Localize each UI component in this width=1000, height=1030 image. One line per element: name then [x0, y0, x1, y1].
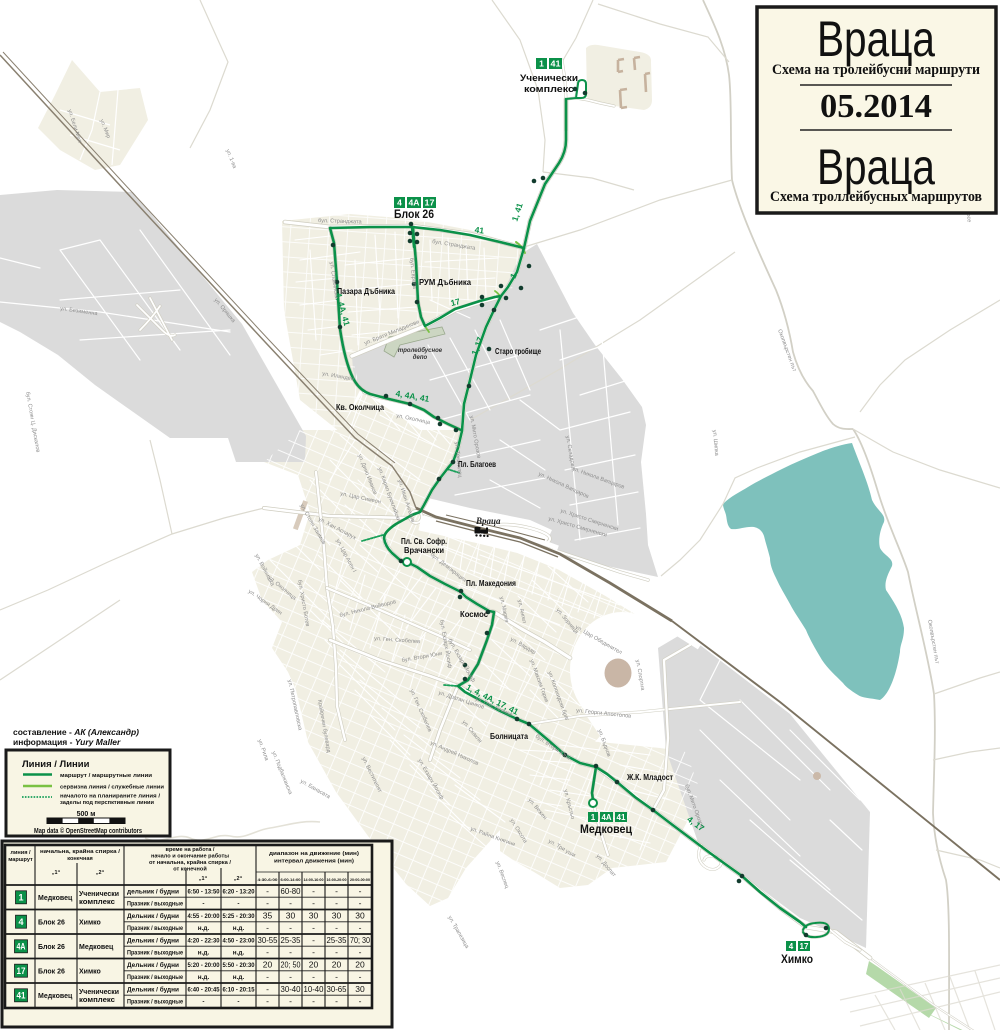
svg-text:-: - — [312, 972, 315, 982]
svg-text:-: - — [237, 901, 239, 908]
svg-text:41: 41 — [17, 991, 26, 1001]
svg-text:16:00-20:00: 16:00-20:00 — [327, 877, 348, 882]
svg-text:-: - — [266, 996, 269, 1006]
svg-text:6:00-14:00: 6:00-14:00 — [281, 877, 302, 882]
svg-text:Дельник / будни: Дельник / будни — [127, 913, 179, 920]
svg-text:н.д.: н.д. — [233, 950, 245, 957]
svg-text:Враца: Враца — [817, 139, 935, 195]
svg-text:5:20 - 20:00: 5:20 - 20:00 — [188, 962, 220, 969]
svg-text:4А: 4А — [409, 198, 420, 208]
svg-text:4: 4 — [789, 942, 794, 951]
svg-text:-: - — [312, 923, 315, 933]
svg-text:-: - — [335, 996, 338, 1006]
svg-text:17: 17 — [425, 198, 435, 208]
svg-text:-: - — [266, 886, 269, 896]
svg-text:-: - — [289, 923, 292, 933]
svg-text:Ученически: Ученически — [79, 891, 119, 898]
svg-text:10-40: 10-40 — [304, 984, 324, 994]
svg-text:-: - — [266, 947, 269, 957]
svg-text:н.д.: н.д. — [233, 925, 245, 932]
svg-text:Медковец: Медковец — [79, 944, 114, 951]
svg-text:1: 1 — [539, 59, 544, 69]
svg-text:41: 41 — [551, 59, 561, 69]
svg-text:500 м: 500 м — [77, 811, 96, 818]
svg-text:-: - — [237, 999, 239, 1006]
svg-text:6:20 - 13:20: 6:20 - 13:20 — [223, 888, 255, 895]
svg-text:-: - — [312, 898, 315, 908]
svg-text:Космос: Космос — [460, 609, 488, 619]
svg-text:-: - — [335, 923, 338, 933]
svg-text:РУМ Дъбника: РУМ Дъбника — [419, 277, 471, 287]
svg-text:„2“: „2“ — [96, 870, 105, 876]
svg-text:Враца: Враца — [817, 11, 935, 67]
svg-text:Блок 26: Блок 26 — [38, 944, 65, 951]
svg-text:-: - — [289, 996, 292, 1006]
svg-text:начало и окончание работы: начало и окончание работы — [151, 853, 229, 860]
svg-text:4:30-6:00: 4:30-6:00 — [258, 877, 279, 882]
svg-text:-: - — [335, 947, 338, 957]
svg-text:Врачански: Врачански — [404, 545, 444, 555]
svg-text:4:20 - 22:30: 4:20 - 22:30 — [188, 937, 220, 944]
svg-text:20: 20 — [355, 959, 365, 969]
svg-text:Кв. Околчица: Кв. Околчица — [336, 402, 384, 412]
svg-text:4:50 - 23:00: 4:50 - 23:00 — [223, 937, 255, 944]
svg-text:-: - — [359, 886, 362, 896]
svg-text:Блок 26: Блок 26 — [38, 968, 65, 975]
svg-text:6:10 - 20:15: 6:10 - 20:15 — [223, 986, 255, 993]
svg-text:-: - — [359, 996, 362, 1006]
svg-text:Медковец: Медковец — [38, 895, 73, 902]
svg-text:5:50 - 20:30: 5:50 - 20:30 — [223, 962, 255, 969]
svg-text:60-80: 60-80 — [281, 886, 301, 896]
svg-text:-: - — [359, 923, 362, 933]
svg-text:20: 20 — [332, 959, 342, 969]
svg-text:Празник / выходные: Празник / выходные — [127, 950, 183, 957]
svg-text:-: - — [335, 898, 338, 908]
svg-text:-: - — [312, 947, 315, 957]
svg-text:20: 20 — [263, 959, 273, 969]
svg-text:Дельник / будни: Дельник / будни — [127, 986, 179, 993]
svg-text:Медковец: Медковец — [580, 824, 632, 836]
svg-text:-: - — [266, 984, 269, 994]
svg-text:Старо гробище: Старо гробище — [495, 346, 541, 356]
svg-text:6:50 - 13:50: 6:50 - 13:50 — [188, 888, 220, 895]
svg-text:н.д.: н.д. — [233, 974, 245, 981]
svg-text:Дельник / будни: Дельник / будни — [127, 937, 179, 944]
svg-text:Дельник / будни: Дельник / будни — [127, 962, 179, 969]
svg-text:начальна, крайна спирка /: начальна, крайна спирка / — [40, 848, 120, 855]
svg-text:70; 30: 70; 30 — [350, 935, 370, 945]
svg-text:Ученически: Ученически — [79, 989, 119, 996]
svg-text:6:40 - 20:45: 6:40 - 20:45 — [188, 986, 220, 993]
svg-text:маршрут / маршрутные линии: маршрут / маршрутные линии — [60, 773, 152, 779]
svg-text:4А: 4А — [602, 813, 612, 822]
svg-text:25-35: 25-35 — [281, 935, 301, 945]
svg-text:30: 30 — [355, 910, 365, 920]
svg-text:сервизна линия / служебные лин: сервизна линия / служебные линии — [60, 784, 164, 791]
svg-text:н.д.: н.д. — [198, 950, 210, 957]
svg-text:-: - — [266, 898, 269, 908]
svg-text:линия /: линия / — [10, 850, 31, 856]
svg-text:Линия / Линии: Линия / Линии — [22, 759, 90, 770]
svg-text:Схема троллейбусных маршрутов: Схема троллейбусных маршрутов — [770, 189, 982, 205]
svg-text:„1“: „1“ — [199, 876, 208, 882]
svg-text:20: 20 — [309, 959, 319, 969]
svg-text:Химко: Химко — [781, 954, 813, 966]
svg-text:30: 30 — [332, 910, 342, 920]
svg-text:30: 30 — [286, 910, 296, 920]
svg-text:30-55: 30-55 — [258, 935, 278, 945]
svg-text:-: - — [289, 972, 292, 982]
svg-text:време на работа /: време на работа / — [166, 846, 215, 853]
svg-text:30-65: 30-65 — [327, 984, 347, 994]
svg-text:-: - — [289, 947, 292, 957]
svg-text:депо: депо — [413, 355, 428, 361]
svg-text:Map data © OpenStreetMap contr: Map data © OpenStreetMap contributors — [34, 827, 142, 835]
svg-text:н.д.: н.д. — [198, 974, 210, 981]
svg-text:-: - — [312, 886, 315, 896]
svg-text:41: 41 — [474, 224, 485, 235]
svg-text:-: - — [202, 901, 204, 908]
svg-text:комплекс: комплекс — [524, 84, 575, 95]
svg-text:-: - — [335, 886, 338, 896]
svg-text:1: 1 — [591, 813, 596, 822]
svg-text:Блок 26: Блок 26 — [38, 919, 65, 926]
svg-text:17: 17 — [17, 966, 26, 976]
svg-text:30: 30 — [355, 984, 365, 994]
svg-text:комплекс: комплекс — [79, 899, 115, 906]
svg-text:Медковец: Медковец — [38, 993, 73, 1000]
svg-text:Химко: Химко — [79, 968, 101, 975]
svg-text:Ученически: Ученически — [520, 73, 578, 84]
svg-text:маршрут: маршрут — [8, 857, 33, 863]
svg-text:Ж.К. Младост: Ж.К. Младост — [626, 772, 673, 782]
svg-text:Схема на тролейбусни маршрути: Схема на тролейбусни маршрути — [772, 62, 980, 78]
svg-text:-: - — [335, 972, 338, 982]
svg-text:составление - АК (Александр): составление - АК (Александр) — [13, 727, 139, 737]
svg-text:Празник / выходные: Празник / выходные — [127, 925, 183, 932]
svg-text:25-35: 25-35 — [327, 935, 347, 945]
svg-text:20:00-00:00: 20:00-00:00 — [350, 877, 371, 882]
svg-text:-: - — [266, 923, 269, 933]
svg-text:от начальна, крайна спирка /: от начальна, крайна спирка / — [149, 859, 231, 866]
svg-text:30: 30 — [309, 910, 319, 920]
svg-text:комплекс: комплекс — [79, 997, 115, 1004]
svg-text:от конечной: от конечной — [173, 866, 207, 873]
svg-text:Враца: Враца — [475, 516, 501, 526]
svg-text:41: 41 — [617, 813, 627, 822]
svg-text:Болницата: Болницата — [490, 731, 528, 741]
svg-text:тролейбусное: тролейбусное — [398, 347, 443, 354]
svg-text:конечная: конечная — [67, 856, 93, 862]
svg-text:Пазара Дъбника: Пазара Дъбника — [337, 286, 395, 296]
svg-text:05.2014: 05.2014 — [820, 88, 932, 125]
svg-text:информация - Yury Maller: информация - Yury Maller — [13, 737, 121, 747]
svg-text:н.д.: н.д. — [198, 925, 210, 932]
svg-text:заделы под перспктивные линии: заделы под перспктивные линии — [60, 800, 154, 806]
svg-text:Блок 26: Блок 26 — [394, 209, 434, 221]
svg-text:Химко: Химко — [79, 919, 101, 926]
svg-text:4А: 4А — [17, 942, 26, 952]
svg-text:-: - — [312, 935, 315, 945]
svg-text:17: 17 — [800, 942, 810, 951]
svg-text:5:25 - 20:30: 5:25 - 20:30 — [223, 913, 255, 920]
svg-text:4: 4 — [18, 917, 23, 927]
svg-text:1: 1 — [18, 893, 23, 903]
svg-text:35: 35 — [263, 910, 273, 920]
svg-text:-: - — [359, 972, 362, 982]
svg-text:интервал движения (мин): интервал движения (мин) — [274, 859, 354, 865]
svg-text:началото на планираните линия: началото на планираните линия / — [60, 794, 160, 800]
svg-text:„2“: „2“ — [234, 876, 243, 882]
svg-text:-: - — [312, 996, 315, 1006]
svg-text:30-40: 30-40 — [281, 984, 301, 994]
svg-text:диапазон на движение (мин): диапазон на движение (мин) — [269, 851, 359, 857]
svg-text:дельник / будни: дельник / будни — [127, 888, 179, 895]
svg-text:4:55 - 20:00: 4:55 - 20:00 — [188, 913, 220, 920]
svg-text:Пл. Благоев: Пл. Благоев — [458, 459, 496, 469]
svg-text:-: - — [359, 898, 362, 908]
svg-text:Празник / выходные: Празник / выходные — [127, 901, 183, 908]
svg-text:-: - — [359, 947, 362, 957]
svg-text:Празник / выходные: Празник / выходные — [127, 999, 183, 1006]
svg-text:-: - — [289, 898, 292, 908]
svg-text:Празник / выходные: Празник / выходные — [127, 974, 183, 981]
svg-text:-: - — [202, 999, 204, 1006]
svg-text:„1“: „1“ — [52, 870, 61, 876]
svg-text:20; 50: 20; 50 — [281, 959, 301, 969]
svg-text:14:00-16:00: 14:00-16:00 — [304, 877, 325, 882]
svg-text:4: 4 — [397, 198, 402, 208]
svg-text:-: - — [266, 972, 269, 982]
svg-text:Пл. Македония: Пл. Македония — [466, 578, 516, 588]
